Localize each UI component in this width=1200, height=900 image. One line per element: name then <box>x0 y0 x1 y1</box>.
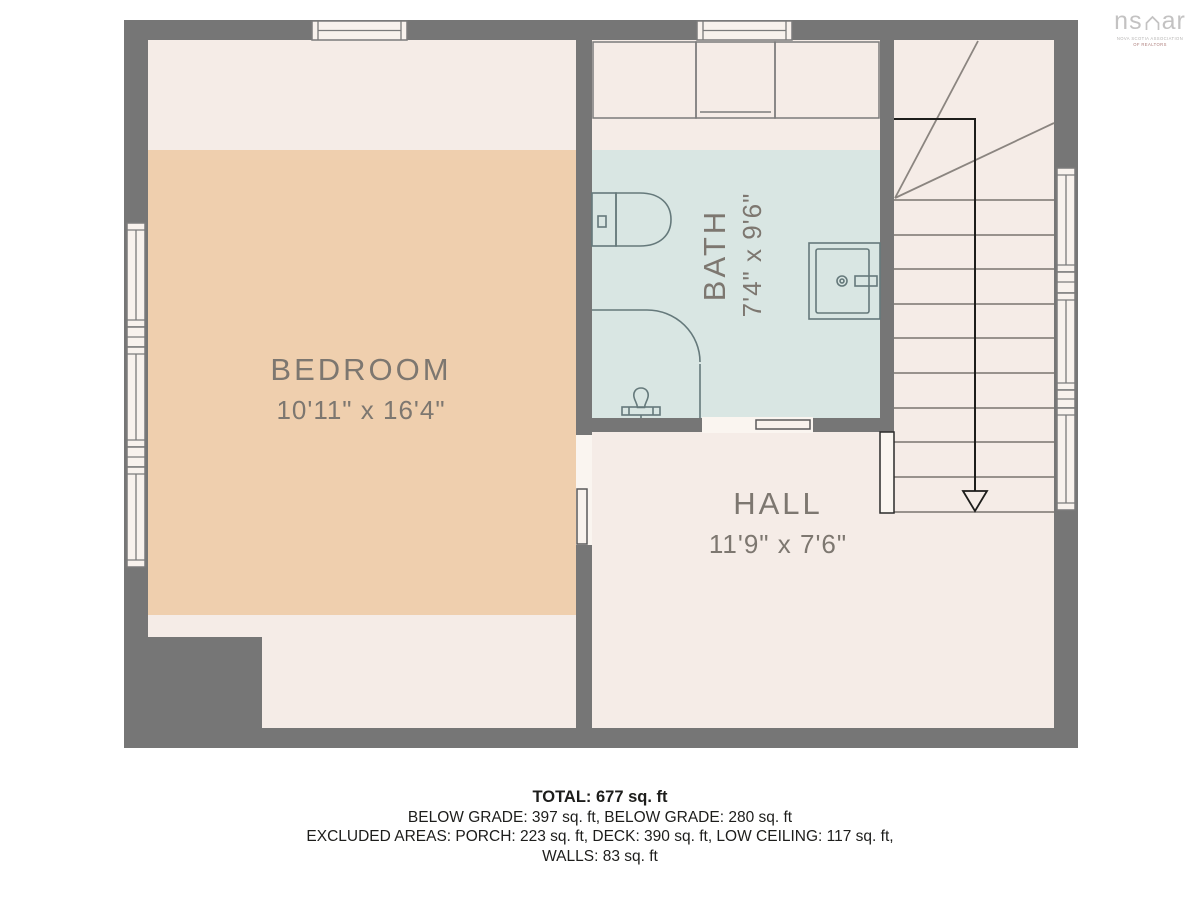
summary-grades: BELOW GRADE: 397 sq. ft, BELOW GRADE: 28… <box>0 808 1200 828</box>
hall-dimensions: 11'9" x 7'6" <box>628 524 928 564</box>
page: { "logo": { "text_left": "ns", "text_rig… <box>0 0 1200 900</box>
area-summary: TOTAL: 677 sq. ft BELOW GRADE: 397 sq. f… <box>0 788 1200 866</box>
bedroom-label-block: BEDROOM 10'11" x 16'4" <box>211 350 511 430</box>
stair-cut-line <box>894 119 975 491</box>
staircase <box>880 41 1054 513</box>
summary-walls: WALLS: 83 sq. ft <box>0 847 1200 867</box>
house-icon <box>1144 14 1161 34</box>
door-bedroom-hall <box>576 435 592 545</box>
windows-right-wall <box>1057 168 1075 510</box>
hall-label: HALL <box>628 484 928 524</box>
closet-compartments <box>593 42 879 118</box>
window-top-bath <box>697 21 792 40</box>
bath-label: BATH <box>696 145 734 365</box>
summary-excluded: EXCLUDED AREAS: PORCH: 223 sq. ft, DECK:… <box>0 827 1200 847</box>
logo-text-right: ar <box>1162 8 1186 34</box>
toilet-fixture <box>592 193 671 246</box>
bedroom-label: BEDROOM <box>211 350 511 390</box>
stair-down-arrow <box>963 491 987 511</box>
nsar-logo: ns ar NOVA SCOTIA ASSOCIATION OF REALTOR… <box>1110 8 1190 47</box>
logo-text-left: ns <box>1114 8 1142 34</box>
nsar-logo-wordmark: ns ar <box>1110 8 1190 34</box>
sink-fixture <box>809 243 880 319</box>
logo-tagline-1: NOVA SCOTIA ASSOCIATION <box>1110 36 1190 42</box>
window-top-bedroom <box>312 21 407 40</box>
windows-left-wall <box>127 223 145 567</box>
bath-label-block: BATH 7'4" x 9'6" <box>696 145 770 365</box>
summary-total: TOTAL: 677 sq. ft <box>0 788 1200 808</box>
bath-dimensions: 7'4" x 9'6" <box>734 145 770 365</box>
hall-label-block: HALL 11'9" x 7'6" <box>628 484 928 564</box>
bedroom-dimensions: 10'11" x 16'4" <box>211 390 511 430</box>
logo-tagline-2: OF REALTORS <box>1110 42 1190 48</box>
door-bath-hall <box>702 417 813 433</box>
shower-head-icon <box>622 388 660 418</box>
plan-overlay <box>0 0 1200 900</box>
